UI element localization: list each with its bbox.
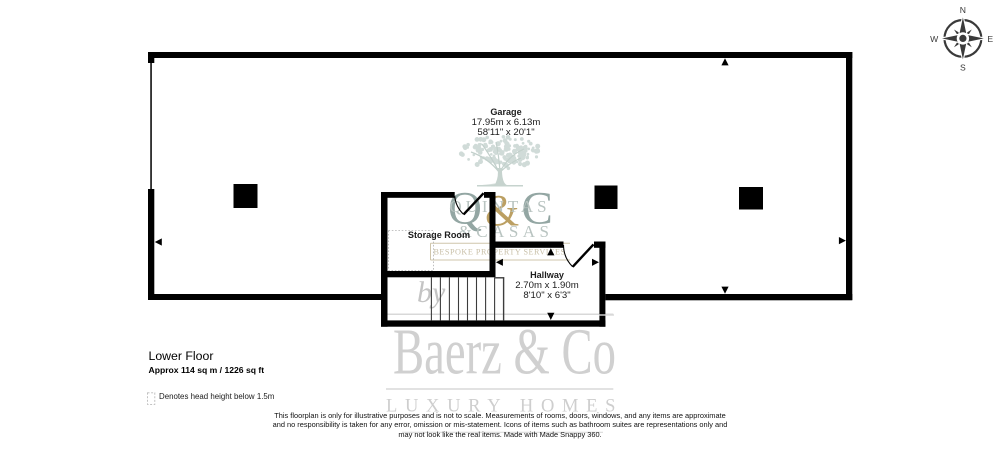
- svg-text:W: W: [930, 34, 939, 44]
- svg-text:S: S: [960, 63, 966, 73]
- svg-text:N: N: [960, 5, 966, 15]
- svg-text:E: E: [987, 34, 993, 44]
